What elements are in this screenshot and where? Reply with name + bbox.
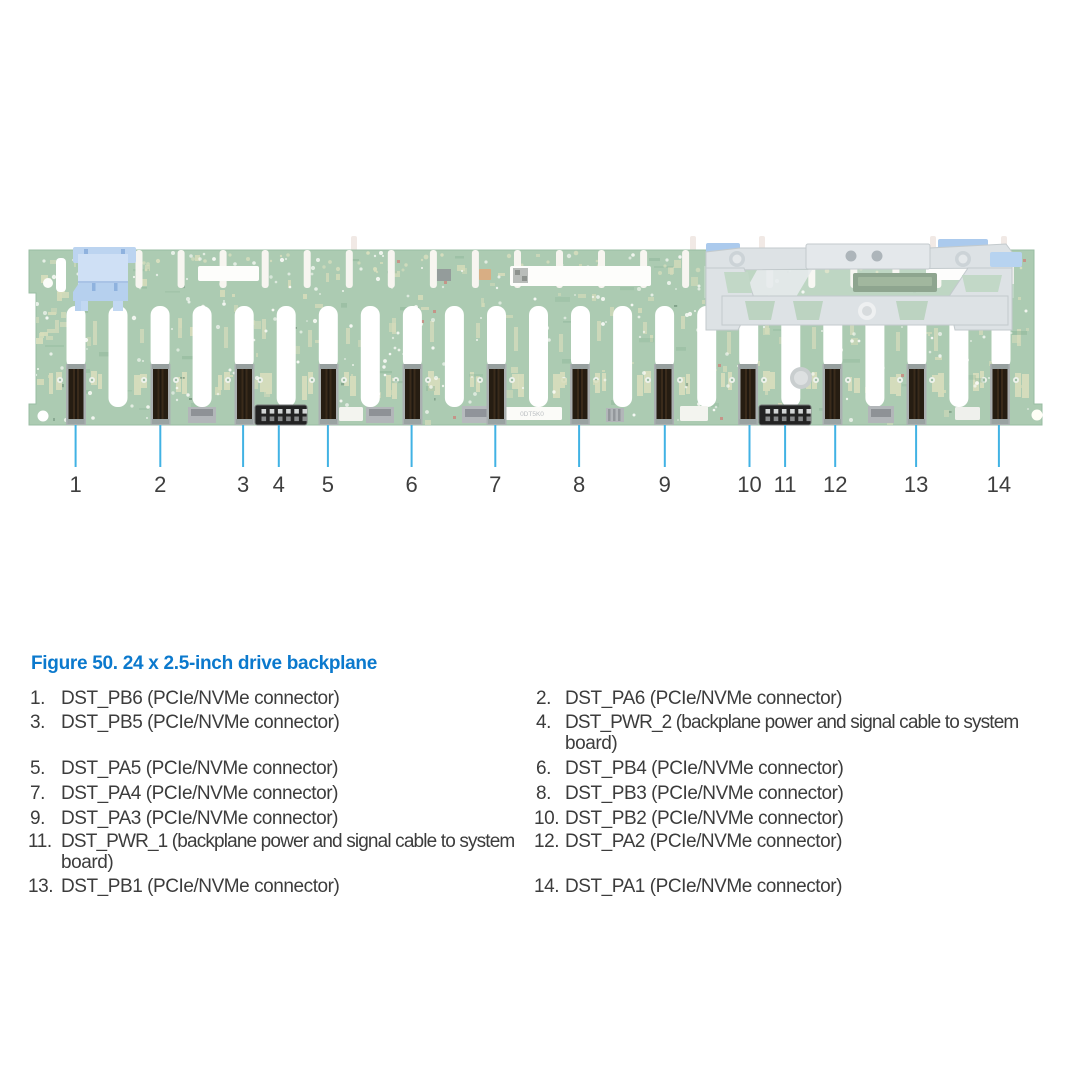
svg-text:6: 6 xyxy=(405,472,417,497)
svg-text:2: 2 xyxy=(154,472,166,497)
svg-text:4: 4 xyxy=(273,472,285,497)
svg-text:13: 13 xyxy=(904,472,928,497)
svg-text:0DT5K0: 0DT5K0 xyxy=(520,411,544,418)
svg-text:1: 1 xyxy=(69,472,81,497)
svg-text:7: 7 xyxy=(489,472,501,497)
svg-text:11: 11 xyxy=(774,472,797,497)
svg-text:12: 12 xyxy=(823,472,847,497)
svg-text:14: 14 xyxy=(987,472,1011,497)
svg-text:5: 5 xyxy=(322,472,334,497)
svg-text:9: 9 xyxy=(659,472,671,497)
svg-text:10: 10 xyxy=(737,472,761,497)
svg-text:8: 8 xyxy=(573,472,585,497)
svg-text:3: 3 xyxy=(237,472,249,497)
